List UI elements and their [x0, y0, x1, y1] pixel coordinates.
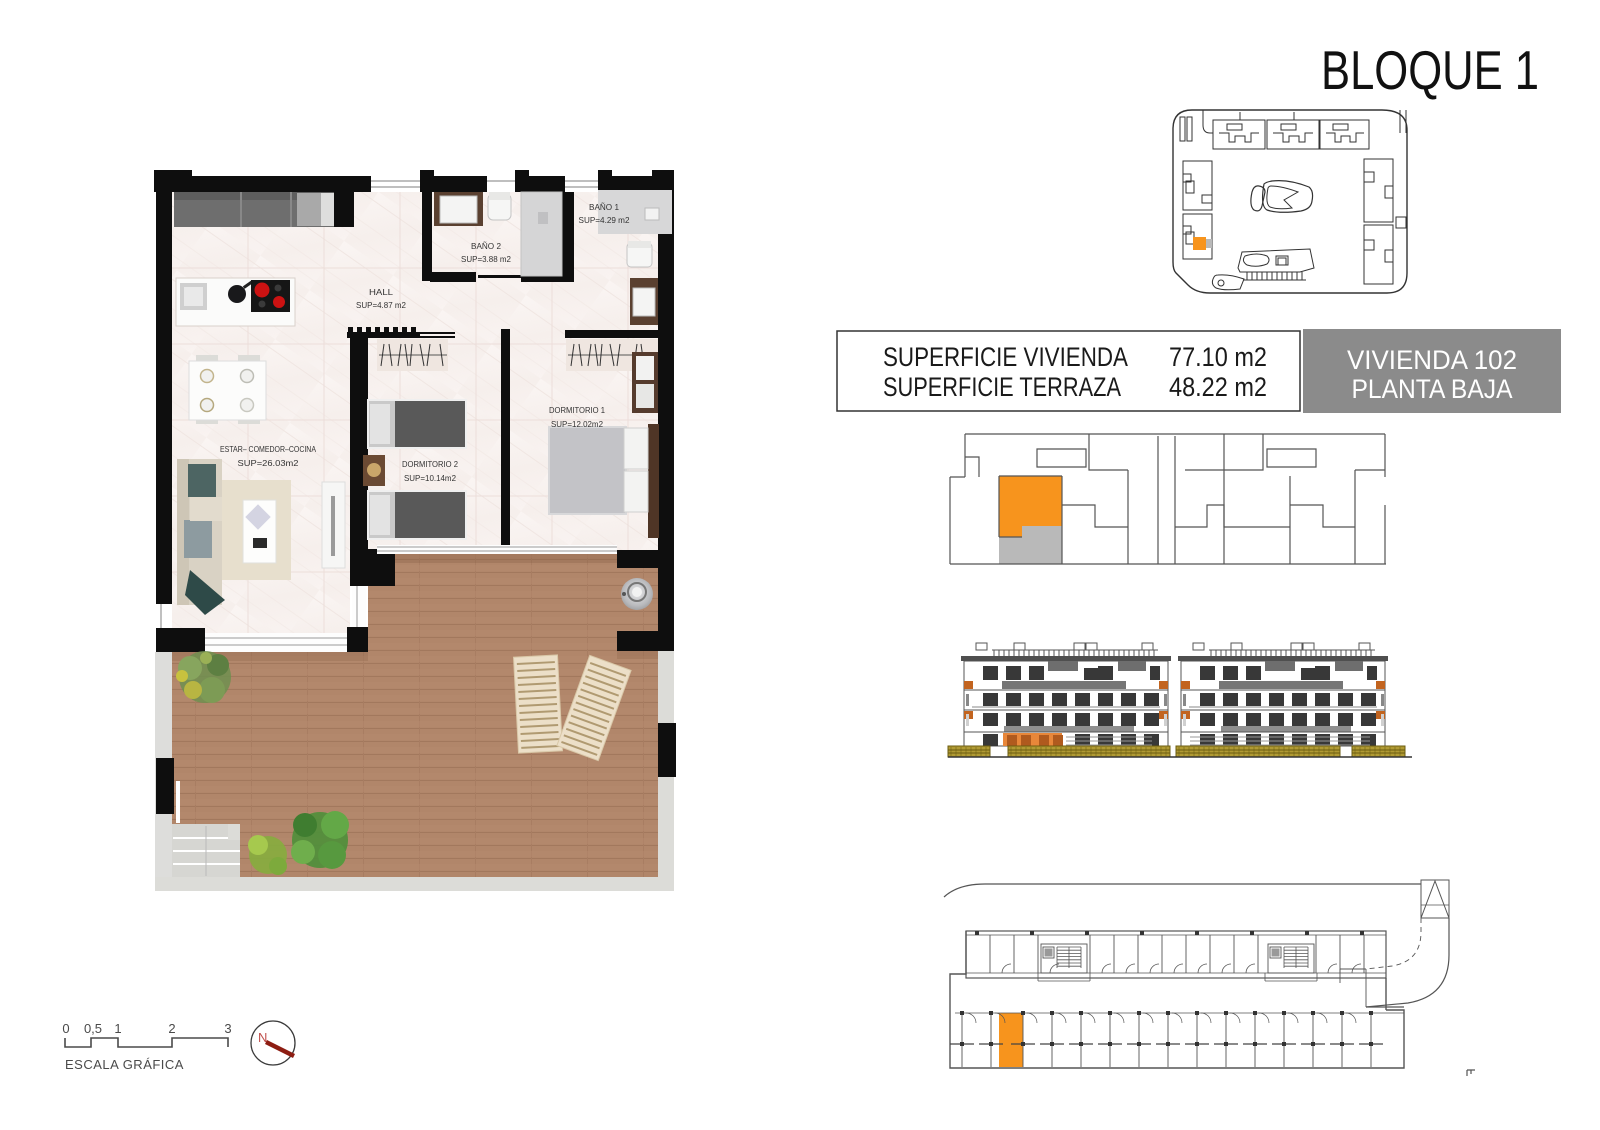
- svg-text:SUPERFICIE TERRAZA: SUPERFICIE TERRAZA: [883, 372, 1121, 402]
- svg-text:SUP=12.02m2: SUP=12.02m2: [551, 419, 603, 429]
- svg-text:DORMITORIO 1: DORMITORIO 1: [549, 405, 605, 415]
- svg-text:SUPERFICIE VIVIENDA: SUPERFICIE VIVIENDA: [883, 342, 1128, 372]
- svg-text:PLANTA BAJA: PLANTA BAJA: [1352, 374, 1513, 404]
- svg-text:SUP=26.03m2: SUP=26.03m2: [238, 458, 299, 468]
- svg-text:BAÑO 1: BAÑO 1: [589, 202, 619, 212]
- svg-text:HALL: HALL: [369, 287, 393, 297]
- svg-text:ESTAR– COMEDOR–COCINA: ESTAR– COMEDOR–COCINA: [220, 444, 316, 454]
- svg-text:ESCALA GRÁFICA: ESCALA GRÁFICA: [65, 1057, 184, 1072]
- svg-text:SUP=4.87 m2: SUP=4.87 m2: [356, 300, 406, 310]
- svg-text:48.22 m2: 48.22 m2: [1169, 372, 1267, 402]
- svg-text:0: 0: [62, 1021, 69, 1036]
- svg-text:DORMITORIO 2: DORMITORIO 2: [402, 459, 458, 469]
- svg-text:77.10 m2: 77.10 m2: [1169, 342, 1267, 372]
- svg-text:VIVIENDA 102: VIVIENDA 102: [1347, 345, 1517, 375]
- svg-text:SUP=3.88 m2: SUP=3.88 m2: [461, 254, 511, 264]
- svg-text:2: 2: [168, 1021, 175, 1036]
- svg-text:SUP=4.29 m2: SUP=4.29 m2: [579, 215, 630, 225]
- svg-text:BLOQUE 1: BLOQUE 1: [1321, 39, 1539, 101]
- svg-text:0,5: 0,5: [84, 1021, 102, 1036]
- svg-text:1: 1: [114, 1021, 121, 1036]
- svg-text:3: 3: [224, 1021, 231, 1036]
- svg-text:SUP=10.14m2: SUP=10.14m2: [404, 473, 456, 483]
- svg-text:BAÑO 2: BAÑO 2: [471, 241, 501, 251]
